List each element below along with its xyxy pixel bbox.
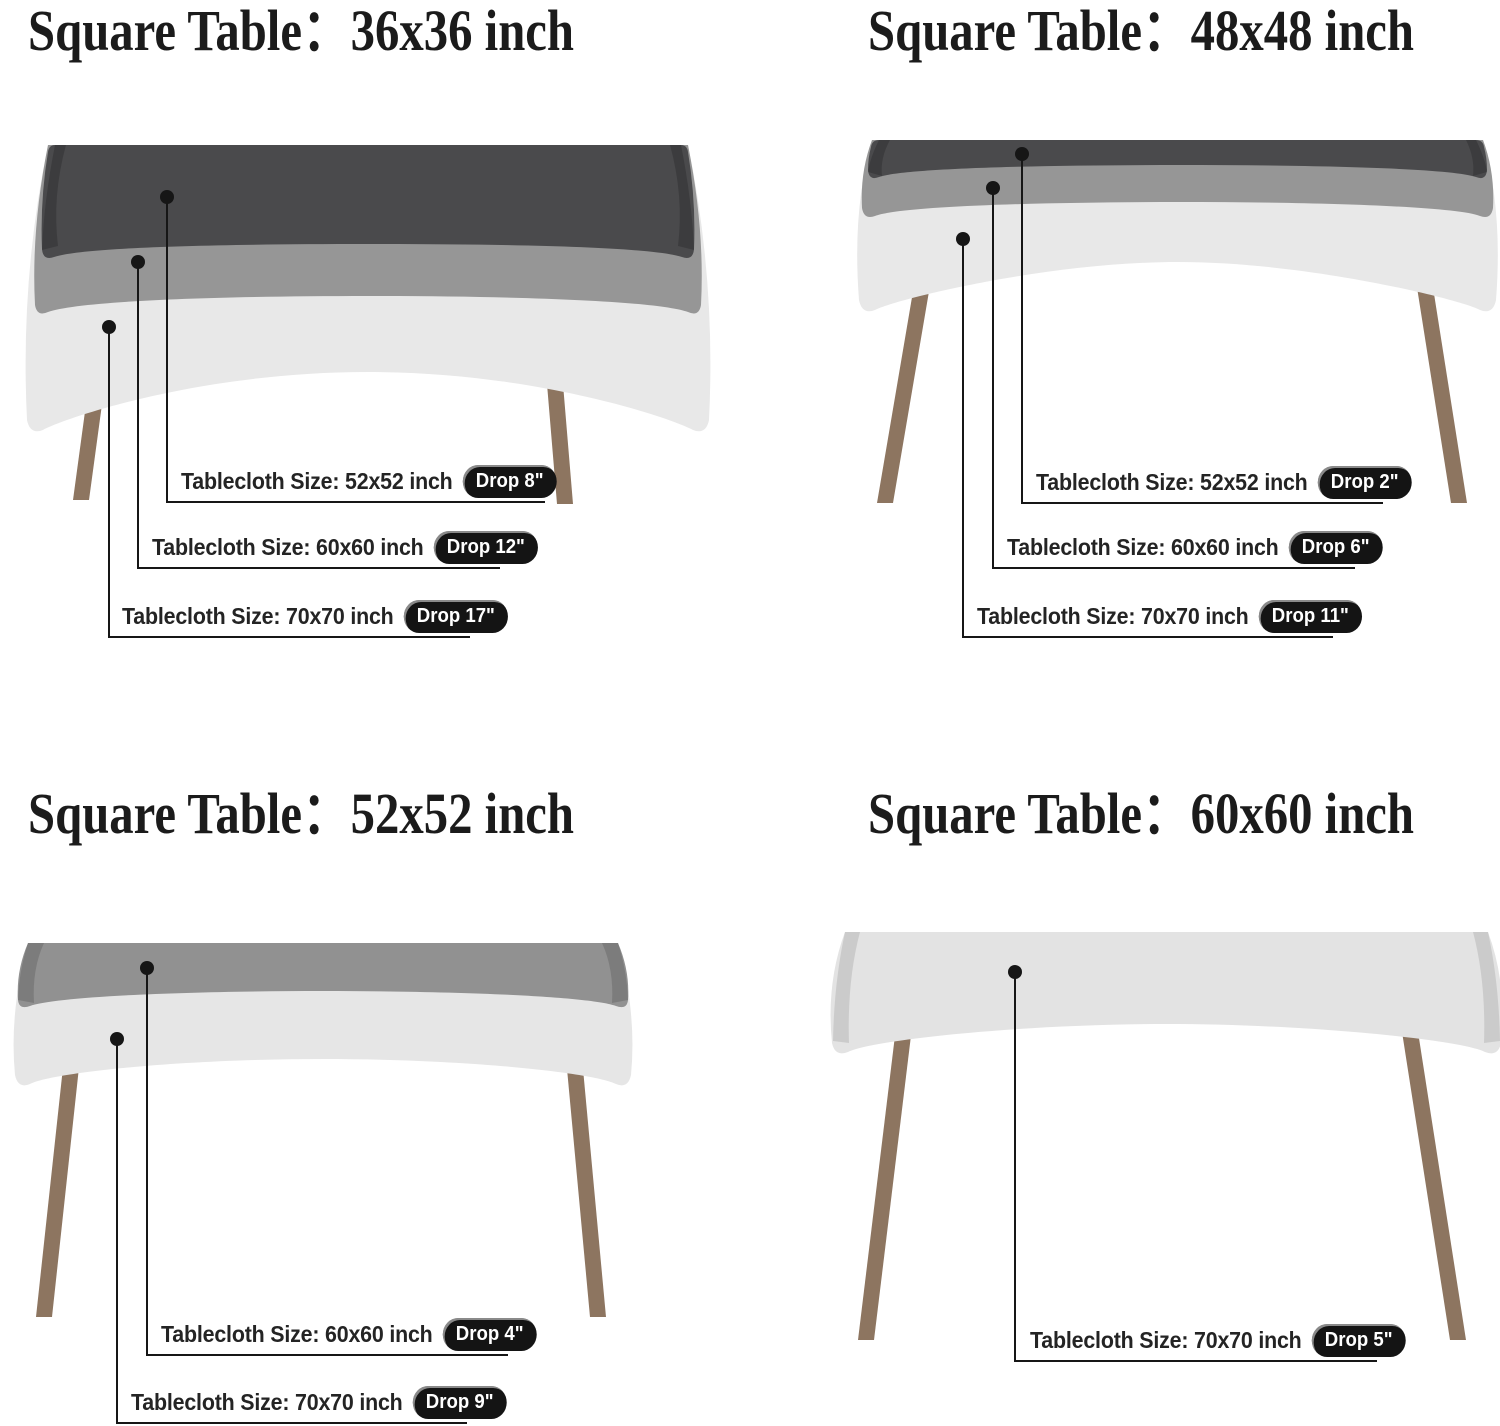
panel-table-48x48: Square Table：48x48 inch Tablecloth Size:… [750, 0, 1500, 713]
drop-badge: Drop 11" [1259, 600, 1362, 633]
table-leg-right [566, 1058, 606, 1317]
callout-dot [110, 1032, 124, 1046]
callout-70x70: Tablecloth Size: 70x70 inch Drop 11" [977, 600, 1362, 633]
callout-label: Tablecloth Size: 70x70 inch [1030, 1327, 1302, 1354]
callout-label: Tablecloth Size: 70x70 inch [131, 1389, 403, 1416]
callout-dot [986, 181, 1000, 195]
table-leg-right [1400, 1019, 1466, 1340]
callout-line [1015, 972, 1377, 1361]
callout-dot [1015, 147, 1029, 161]
table-illustration-60x60 [750, 713, 1500, 1426]
drop-badge: Drop 6" [1289, 531, 1383, 564]
callout-line [963, 239, 1333, 637]
callout-dot [140, 961, 154, 975]
table-leg-left [858, 1019, 913, 1340]
callout-label: Tablecloth Size: 52x52 inch [181, 468, 453, 495]
callout-dot [160, 190, 174, 204]
callout-52x52: Tablecloth Size: 52x52 inch Drop 8" [181, 465, 557, 498]
callout-60x60: Tablecloth Size: 60x60 inch Drop 12" [152, 531, 538, 564]
callout-label: Tablecloth Size: 52x52 inch [1036, 469, 1308, 496]
page: Square Table：36x36 inch Tablecloth Size:… [0, 0, 1500, 1426]
callout-label: Tablecloth Size: 70x70 inch [977, 603, 1249, 630]
drop-badge: Drop 17" [404, 600, 508, 633]
panel-table-36x36: Square Table：36x36 inch Tablecloth Size:… [0, 0, 750, 713]
callout-60x60: Tablecloth Size: 60x60 inch Drop 6" [1007, 531, 1383, 564]
panel-table-60x60: Square Table：60x60 inch Tablecloth Size:… [750, 713, 1500, 1426]
drop-badge: Drop 9" [413, 1386, 507, 1419]
callout-dot [1008, 965, 1022, 979]
drop-badge: Drop 2" [1318, 466, 1412, 499]
callout-70x70: Tablecloth Size: 70x70 inch Drop 17" [122, 600, 508, 633]
drop-badge: Drop 12" [434, 531, 538, 564]
callout-label: Tablecloth Size: 60x60 inch [161, 1321, 433, 1348]
drop-badge: Drop 4" [443, 1318, 537, 1351]
callout-label: Tablecloth Size: 60x60 inch [1007, 534, 1279, 561]
callout-52x52: Tablecloth Size: 52x52 inch Drop 2" [1036, 466, 1412, 499]
table-leg-left [36, 1058, 80, 1317]
callout-line [117, 1039, 467, 1423]
panel-table-52x52: Square Table：52x52 inch Tablecloth Size:… [0, 713, 750, 1426]
callout-70x70: Tablecloth Size: 70x70 inch Drop 9" [131, 1386, 507, 1419]
callout-dot [131, 255, 145, 269]
drop-badge: Drop 8" [463, 465, 557, 498]
callout-dot [102, 320, 116, 334]
tablecloth-layer-52x52 [42, 145, 695, 258]
callout-dot [956, 232, 970, 246]
callout-label: Tablecloth Size: 60x60 inch [152, 534, 424, 561]
tablecloth-layer-70x70 [831, 932, 1500, 1053]
callout-70x70: Tablecloth Size: 70x70 inch Drop 5" [1030, 1324, 1406, 1357]
callout-label: Tablecloth Size: 70x70 inch [122, 603, 394, 630]
callout-60x60: Tablecloth Size: 60x60 inch Drop 4" [161, 1318, 537, 1351]
drop-badge: Drop 5" [1312, 1324, 1406, 1357]
